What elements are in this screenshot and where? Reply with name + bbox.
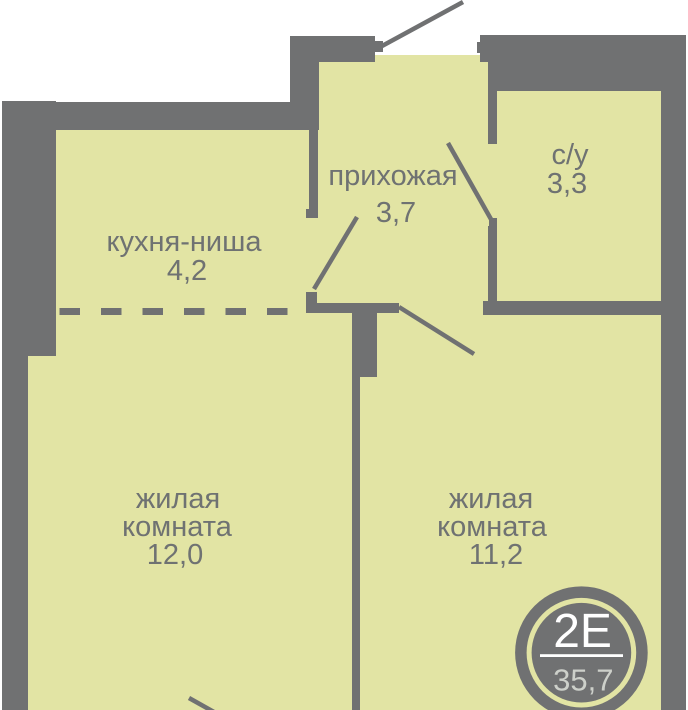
svg-text:35,7: 35,7 <box>553 663 613 698</box>
svg-text:2Е: 2Е <box>553 605 612 658</box>
